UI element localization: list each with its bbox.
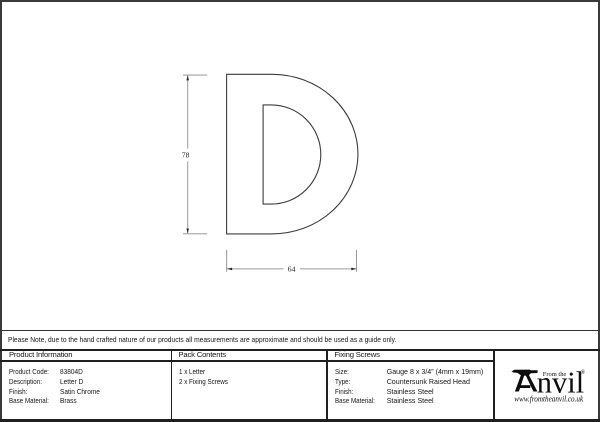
svg-text:78: 78 xyxy=(182,151,190,160)
svg-text:64: 64 xyxy=(288,264,296,273)
svg-text:®: ® xyxy=(581,369,586,376)
svg-text:www.fromtheanvil.co.uk: www.fromtheanvil.co.uk xyxy=(514,393,584,403)
